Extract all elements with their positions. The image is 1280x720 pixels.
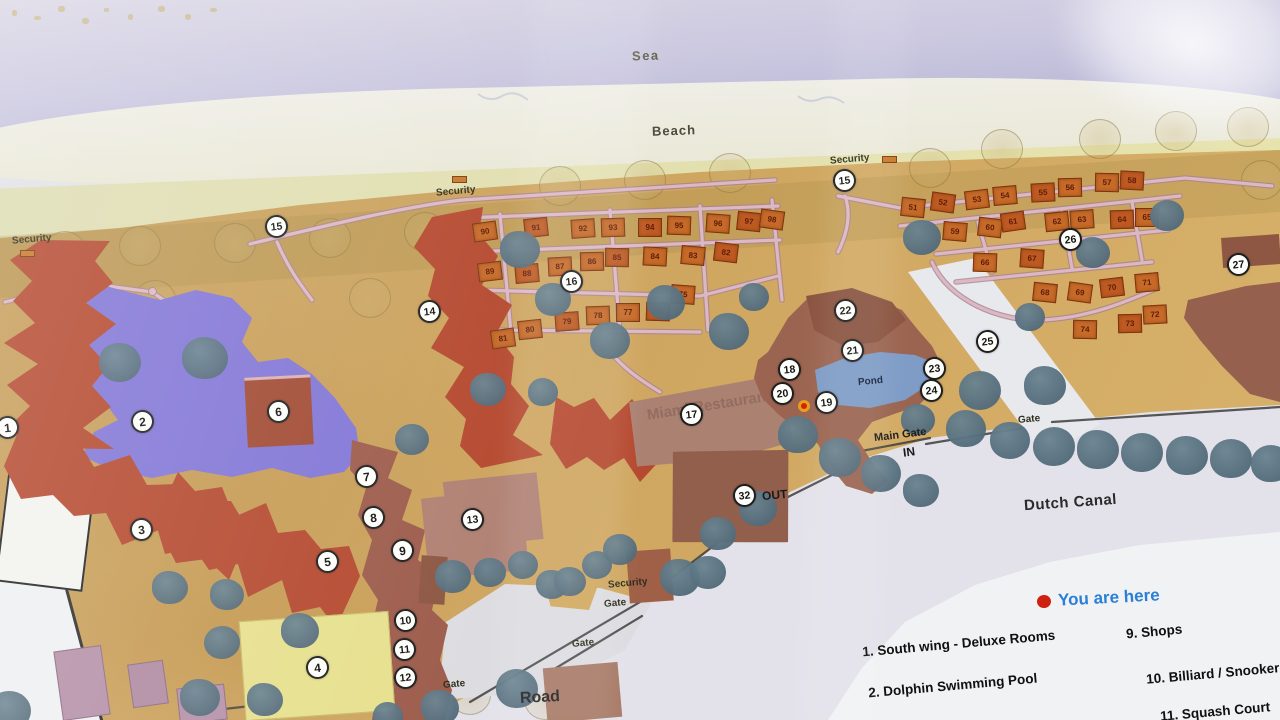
- cottage-89: 89: [477, 261, 503, 283]
- tree-icon: [1015, 303, 1045, 331]
- cottage-58: 58: [1120, 170, 1145, 190]
- cottage-84: 84: [643, 246, 668, 266]
- cottage-52: 52: [930, 191, 956, 213]
- cottage-82: 82: [713, 242, 739, 264]
- tree-icon: [903, 474, 939, 507]
- tree-icon: [739, 283, 769, 311]
- cottage-92: 92: [570, 218, 595, 239]
- tree-icon: [247, 683, 283, 716]
- cottage-93: 93: [601, 218, 626, 238]
- you-are-here-marker-icon: [798, 400, 810, 412]
- sea-label: Sea: [632, 48, 660, 64]
- cottage-72: 72: [1143, 304, 1168, 324]
- tree-icon: [210, 579, 244, 610]
- cottage-53: 53: [964, 189, 990, 211]
- cottage-63: 63: [1069, 209, 1094, 230]
- pond-label: Pond: [858, 375, 884, 388]
- cottage-80: 80: [517, 319, 543, 340]
- tree-icon: [709, 313, 749, 350]
- tree-icon: [778, 416, 818, 453]
- cottage-94: 94: [638, 218, 662, 237]
- tree-icon: [903, 220, 941, 255]
- cottage-61: 61: [1000, 210, 1026, 232]
- tree-icon: [500, 231, 540, 268]
- tree-icon: [1077, 430, 1119, 469]
- tree-icon: [508, 551, 538, 579]
- building-pink: [127, 660, 169, 709]
- in-label: IN: [902, 444, 916, 459]
- cottage-83: 83: [680, 245, 706, 266]
- cottage-86: 86: [580, 252, 604, 271]
- out-label: OUT: [761, 487, 787, 503]
- tree-icon: [990, 422, 1030, 459]
- tree-icon: [959, 371, 1001, 410]
- tree-icon: [182, 337, 228, 379]
- cottage-97: 97: [736, 211, 762, 232]
- cottage-81: 81: [490, 327, 516, 349]
- cottage-56: 56: [1058, 178, 1082, 197]
- tree-icon: [99, 343, 141, 382]
- cottage-73: 73: [1118, 314, 1142, 333]
- tree-icon: [1251, 445, 1280, 482]
- tree-icon: [528, 378, 558, 406]
- tree-icon: [1033, 427, 1075, 466]
- tree-icon: [554, 567, 586, 596]
- cottage-96: 96: [705, 213, 730, 234]
- security-post-icon: [20, 250, 35, 257]
- cottage-55: 55: [1031, 182, 1056, 202]
- cottage-71: 71: [1134, 272, 1160, 293]
- beach-label: Beach: [652, 122, 697, 139]
- tree-icon: [1210, 439, 1252, 478]
- security-post-icon: [452, 176, 467, 183]
- cottage-85: 85: [605, 248, 629, 267]
- tree-icon: [590, 322, 630, 359]
- tree-icon: [819, 438, 861, 477]
- cottage-66: 66: [973, 253, 998, 273]
- cottage-90: 90: [472, 220, 498, 242]
- gate-label: Gate: [604, 597, 627, 610]
- cottage-51: 51: [900, 197, 926, 218]
- security-post-icon: [882, 156, 897, 163]
- tree-icon: [1121, 433, 1163, 472]
- resort-map-photo: Miami Restaurant Sea Beach Road Dutch Ca…: [0, 0, 1280, 720]
- tree-icon: [1024, 366, 1066, 405]
- road-label: Road: [520, 688, 561, 708]
- tree-icon: [700, 517, 736, 550]
- cottage-77: 77: [616, 303, 640, 322]
- tree-icon: [946, 410, 986, 447]
- gate-label: Gate: [1018, 413, 1041, 426]
- building-pink: [53, 645, 110, 720]
- tree-icon: [281, 613, 319, 648]
- tree-icon: [152, 571, 188, 604]
- cottage-67: 67: [1019, 248, 1044, 269]
- tree-icon: [861, 455, 901, 492]
- cottage-70: 70: [1099, 277, 1125, 299]
- tree-icon: [1166, 436, 1208, 475]
- cottage-95: 95: [667, 216, 692, 236]
- cottage-54: 54: [992, 185, 1018, 206]
- gate-label: Gate: [572, 637, 595, 650]
- cottage-60: 60: [977, 217, 1003, 239]
- cottage-59: 59: [942, 221, 968, 242]
- cottage-69: 69: [1067, 281, 1093, 303]
- cottage-64: 64: [1110, 210, 1135, 230]
- path-node-icon: [148, 287, 157, 296]
- cottage-98: 98: [759, 208, 785, 230]
- gate-label: Gate: [443, 678, 466, 691]
- cottage-57: 57: [1095, 173, 1119, 192]
- tree-icon: [647, 285, 685, 320]
- cottage-74: 74: [1073, 320, 1097, 339]
- tree-icon: [180, 679, 220, 716]
- cottage-68: 68: [1032, 282, 1058, 303]
